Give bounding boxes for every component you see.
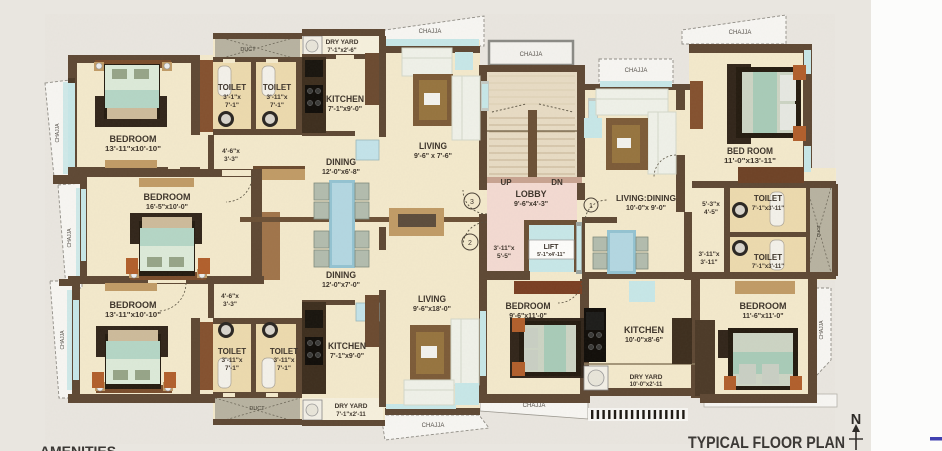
svg-text:AMENITIES: AMENITIES — [40, 443, 116, 451]
